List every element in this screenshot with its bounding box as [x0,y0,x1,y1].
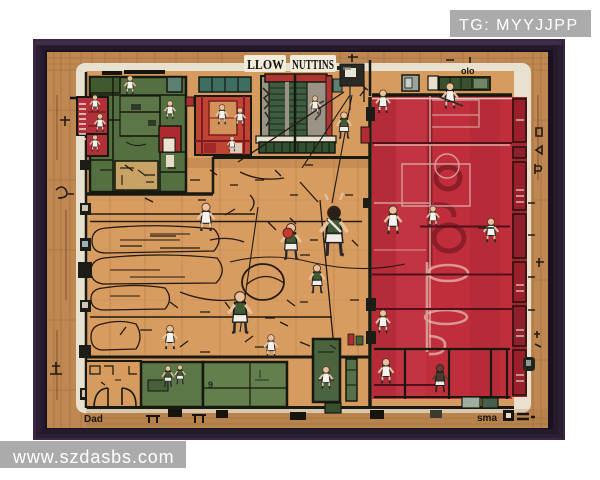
svg-text:olo: olo [461,66,475,76]
svg-text:www.szdasbs.com: www.szdasbs.com [12,447,175,467]
svg-text:NUTTINS: NUTTINS [292,58,334,73]
svg-text:9: 9 [208,380,213,390]
svg-text:sma: sma [477,413,497,424]
svg-text:Dad: Dad [84,414,103,425]
svg-text:LLOW: LLOW [247,58,284,73]
svg-text:TG: MYYJJPP: TG: MYYJJPP [459,17,579,34]
